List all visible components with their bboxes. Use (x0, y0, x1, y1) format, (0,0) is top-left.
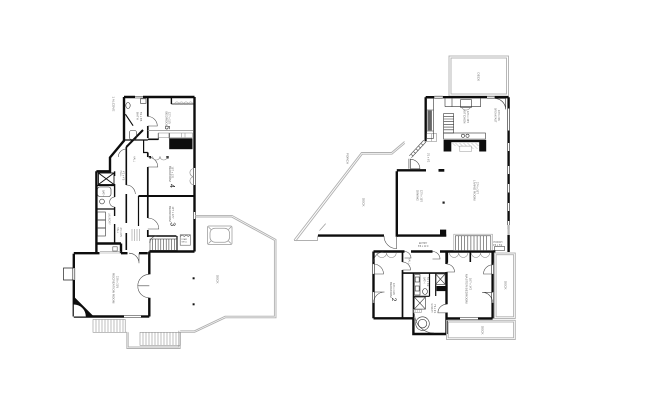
svg-text:M.BATH: M.BATH (430, 304, 433, 313)
svg-text:13'1 x 11'6: 13'1 x 11'6 (392, 283, 395, 295)
svg-text:DECK: DECK (216, 275, 220, 284)
svg-text:2: 2 (390, 298, 397, 302)
svg-text:12'7 x 12'7: 12'7 x 12'7 (171, 207, 174, 220)
svg-text:KITCHEN: KITCHEN (463, 110, 467, 124)
svg-text:DECK: DECK (504, 281, 508, 290)
svg-text:HALL: HALL (133, 156, 136, 163)
svg-text:21'6 x 21'6: 21'6 x 21'6 (116, 276, 119, 289)
svg-text:BATH: BATH (102, 190, 105, 197)
svg-text:8'6 x 11'0: 8'6 x 11'0 (418, 245, 429, 248)
svg-text:12'1 x 15'2: 12'1 x 15'2 (466, 111, 469, 124)
svg-text:16'7 x 14'2: 16'7 x 14'2 (469, 278, 472, 291)
svg-text:10'0 x 9'6: 10'0 x 9'6 (497, 110, 500, 121)
svg-text:WELL: WELL (182, 241, 189, 243)
svg-text:PORCH: PORCH (346, 153, 350, 164)
svg-text:4'1 x 4'5: 4'1 x 4'5 (122, 171, 125, 181)
svg-text:9'6 x 5'2: 9'6 x 5'2 (493, 244, 503, 247)
svg-text:3'4 x 8'5: 3'4 x 8'5 (119, 228, 122, 238)
svg-text:HALL: HALL (116, 227, 119, 234)
svg-text:5'4 x 8'9: 5'4 x 8'9 (426, 277, 429, 287)
svg-text:3'1 x 6'2: 3'1 x 6'2 (427, 153, 430, 163)
svg-text:DINING: DINING (416, 190, 420, 201)
svg-text:BATH: BATH (136, 112, 140, 120)
svg-text:12'0 x 13'0: 12'0 x 13'0 (420, 190, 423, 203)
svg-text:DECK: DECK (362, 198, 366, 207)
svg-text:BEDROOM: BEDROOM (389, 282, 393, 298)
svg-text:STAIR: STAIR (181, 238, 187, 241)
svg-text:HALL: HALL (119, 171, 122, 178)
svg-text:7'6 x 6'1: 7'6 x 6'1 (433, 304, 436, 314)
svg-text:HALL: HALL (408, 258, 411, 265)
svg-text:BATH: BATH (423, 277, 426, 284)
svg-text:15'7 x 13'1: 15'7 x 13'1 (171, 167, 174, 180)
svg-text:27'4 x 20'7: 27'4 x 20'7 (475, 182, 478, 195)
svg-text:DECK: DECK (481, 326, 485, 335)
svg-text:DECK: DECK (477, 73, 481, 82)
svg-text:5: 5 (163, 126, 170, 130)
svg-text:4: 4 (168, 184, 175, 188)
svg-text:12'7 x 11'5: 12'7 x 11'5 (168, 112, 171, 124)
svg-text:1 ALCOVE: 1 ALCOVE (112, 97, 116, 112)
svg-text:3: 3 (168, 222, 175, 226)
svg-text:LAUNDRY: LAUNDRY (108, 213, 111, 225)
svg-text:RECREATION ROOM: RECREATION ROOM (112, 273, 116, 304)
svg-text:5'1 x 8'5: 5'1 x 8'5 (139, 112, 142, 122)
svg-text:MASTER BEDROOM: MASTER BEDROOM (465, 274, 469, 304)
svg-text:BREAKFAST: BREAKFAST (494, 108, 497, 123)
